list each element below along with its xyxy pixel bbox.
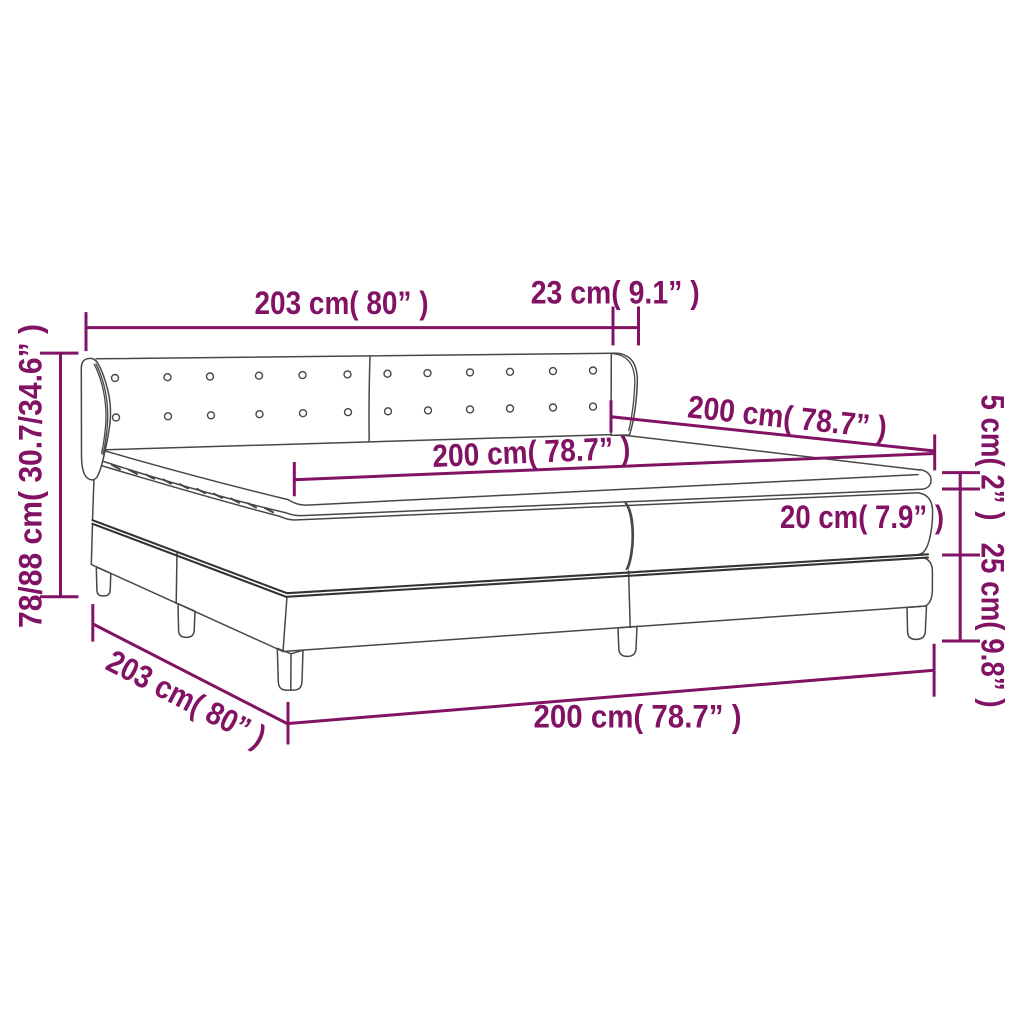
svg-text:25 cm( 9.8” ): 25 cm( 9.8” ) [975,543,1011,708]
svg-text:78/88 cm( 30.7/34.6” ): 78/88 cm( 30.7/34.6” ) [13,324,49,628]
svg-text:20 cm( 7.9” ): 20 cm( 7.9” ) [780,499,944,535]
svg-text:203 cm( 80” ): 203 cm( 80” ) [255,285,429,321]
svg-text:5 cm( 2” ): 5 cm( 2” ) [975,395,1011,521]
svg-text:23 cm( 9.1” ): 23 cm( 9.1” ) [531,275,700,311]
svg-text:200 cm( 78.7” ): 200 cm( 78.7” ) [534,699,742,735]
